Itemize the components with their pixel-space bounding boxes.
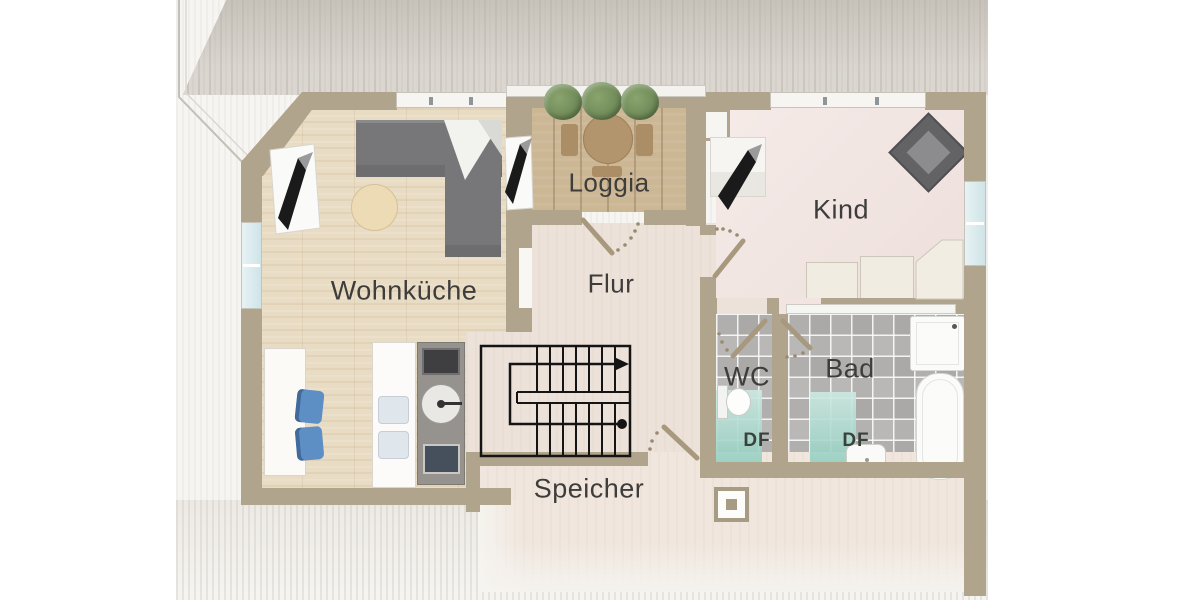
wardrobe: [860, 256, 914, 299]
open-door-leaf: [519, 248, 532, 308]
wall: [466, 452, 480, 512]
shower: [910, 316, 965, 371]
room-label-flur: Flur: [588, 269, 635, 300]
wall: [303, 92, 397, 110]
kitchen-appliance: [423, 444, 460, 474]
loggia-table: [583, 114, 633, 164]
kitchen-sink: [378, 431, 409, 459]
wall: [700, 314, 716, 474]
loggia-chair: [636, 124, 653, 156]
speicher-fade: [478, 500, 524, 592]
wall: [241, 160, 262, 223]
room-label-wohnkueche: Wohnküche: [331, 276, 478, 307]
round-table: [351, 184, 398, 231]
wall: [700, 277, 716, 300]
roof-surface-top: [176, 0, 988, 95]
door-opening: [717, 298, 767, 314]
room-label-kind: Kind: [813, 195, 869, 226]
kitchen-sink: [378, 396, 409, 424]
chimney: [714, 487, 749, 522]
chair: [295, 426, 325, 461]
skylight-label-wc: DF: [743, 430, 770, 452]
interior-window-band: [786, 304, 956, 314]
loggia-chair: [561, 124, 578, 156]
wall: [700, 225, 716, 235]
floor-plan: Wohnküche Loggia Flur Kind WC Bad Speich…: [0, 0, 1200, 600]
sofa-chaise: [445, 120, 501, 257]
room-label-wc: WC: [724, 362, 770, 393]
stove: [422, 348, 460, 375]
wall: [466, 452, 648, 466]
wall: [241, 308, 262, 490]
window: [964, 181, 986, 266]
window: [770, 92, 926, 108]
room-label-bad: Bad: [825, 354, 875, 385]
room-label-loggia: Loggia: [568, 168, 649, 199]
washer-handle: [441, 402, 462, 405]
plant-icon: [621, 84, 659, 120]
wall: [700, 462, 986, 478]
wall: [644, 210, 706, 225]
wall: [506, 210, 582, 225]
plant-icon: [582, 82, 622, 120]
wall: [772, 314, 788, 462]
chair: [294, 389, 324, 425]
skylight-label-bad: DF: [842, 430, 869, 452]
wall: [964, 92, 986, 182]
room-label-speicher: Speicher: [534, 474, 645, 505]
window: [241, 222, 262, 309]
window: [396, 92, 508, 108]
plant-icon: [544, 84, 582, 120]
kind-bed: [710, 137, 766, 197]
wall: [964, 265, 986, 596]
wardrobe: [806, 262, 858, 299]
wall: [703, 92, 771, 110]
speicher-fade: [478, 540, 986, 592]
